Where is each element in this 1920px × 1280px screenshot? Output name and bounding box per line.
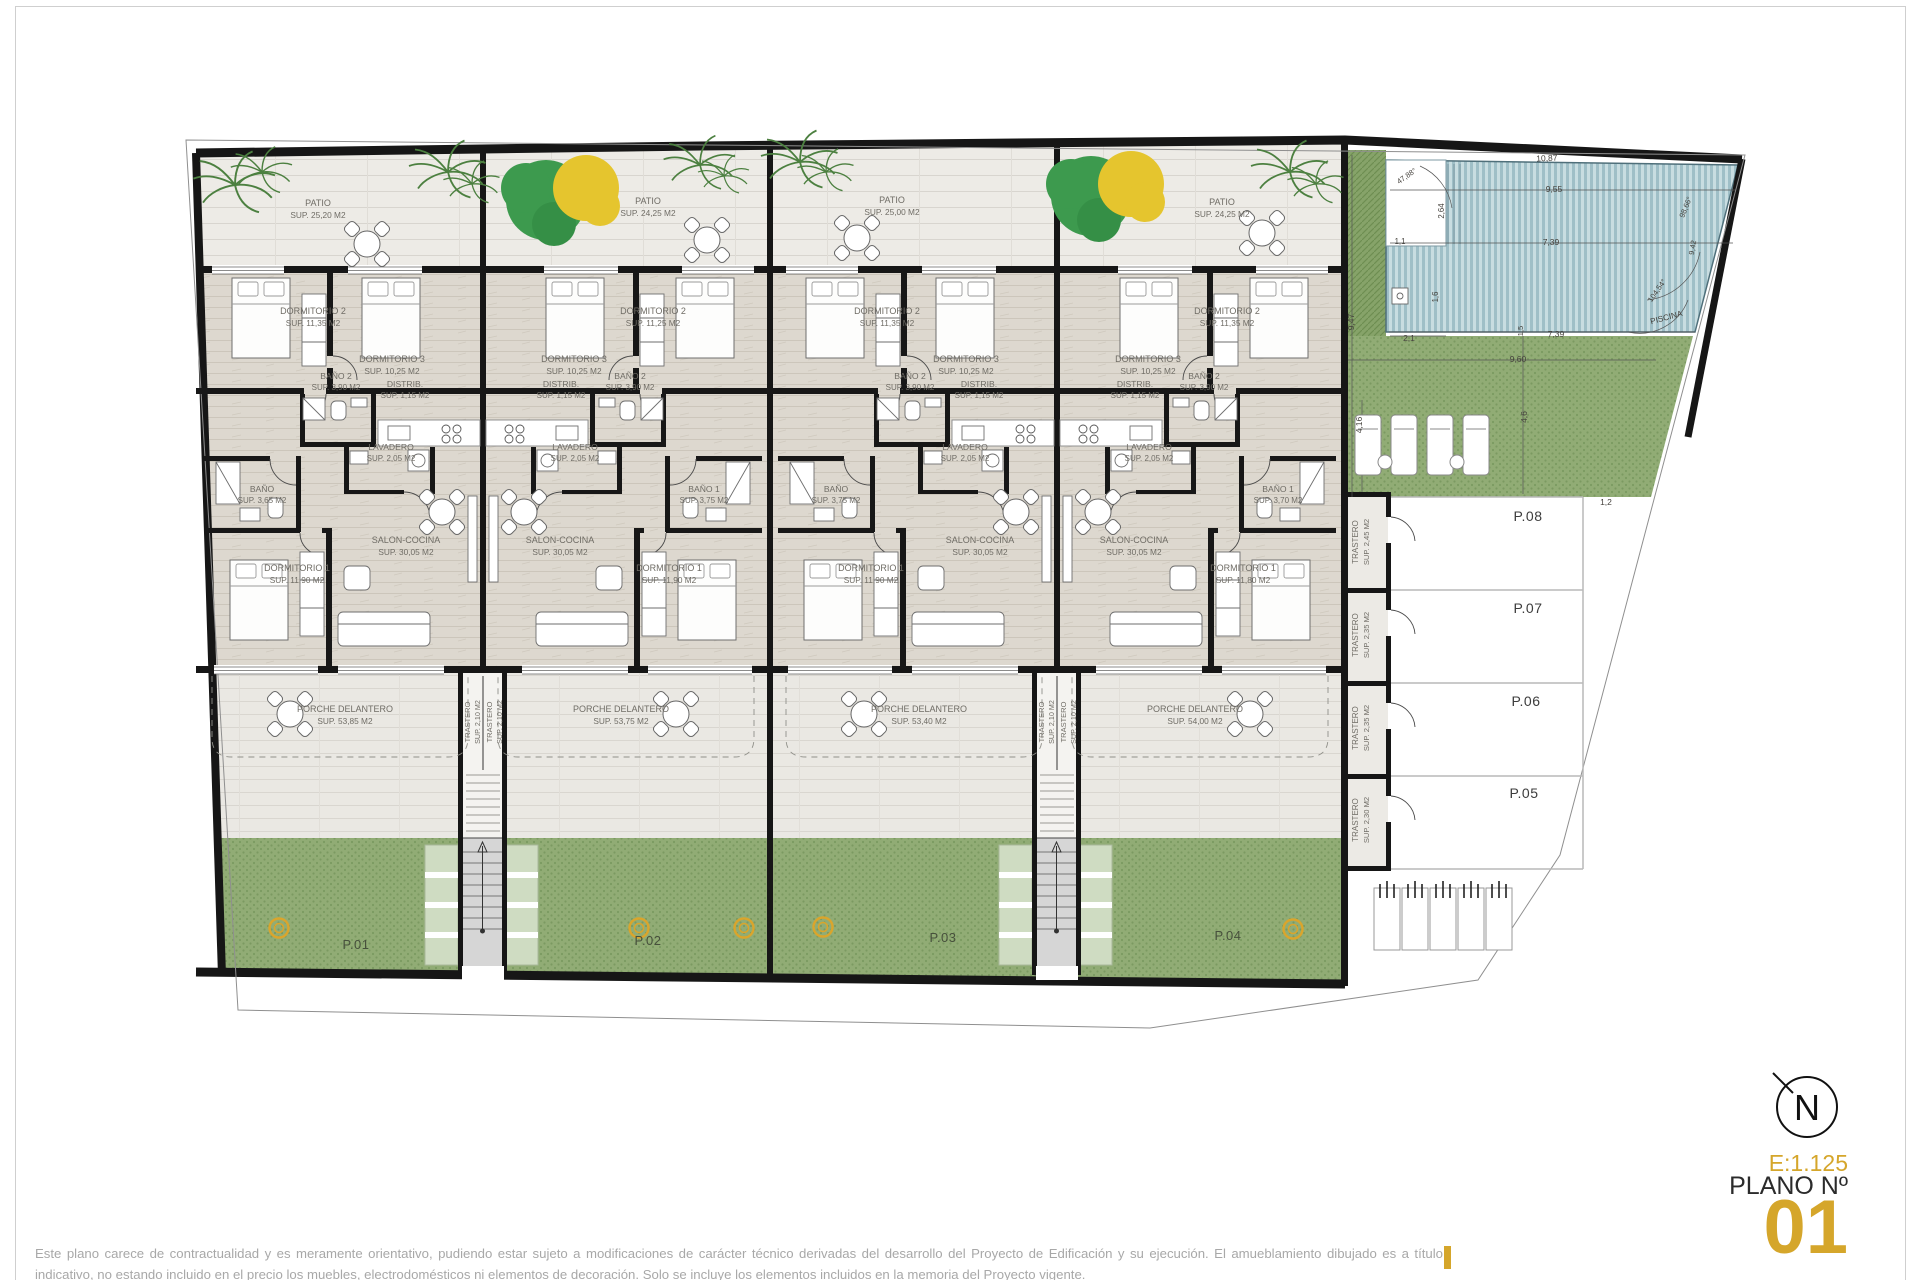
trastero-s1a-name: TRASTERO bbox=[463, 701, 472, 742]
u4-dorm1-area: SUP. 11,80 M2 bbox=[1216, 575, 1271, 585]
u1-dorm1-name: DORMITORIO 1 bbox=[264, 563, 330, 573]
u1-bano1-name: BAÑO bbox=[250, 484, 275, 494]
storage-doors bbox=[1391, 517, 1415, 820]
u2-salon-area: SUP. 30,05 M2 bbox=[532, 547, 588, 557]
u4-salon-name: SALON-COCINA bbox=[1100, 535, 1169, 545]
u2-dorm2-area: SUP. 11,25 M2 bbox=[626, 318, 681, 328]
parking-p06: P.06 bbox=[1512, 693, 1541, 709]
u3-dorm2-name: DORMITORIO 2 bbox=[854, 306, 920, 316]
dim-1-5: 1,5 bbox=[1516, 326, 1525, 336]
u4-dorm1-name: DORMITORIO 1 bbox=[1210, 563, 1276, 573]
u2-lavadero-name: LAVADERO bbox=[552, 442, 598, 452]
u3-distrib-area: SUP. 1,15 M2 bbox=[955, 391, 1004, 400]
u2-dorm1-name: DORMITORIO 1 bbox=[636, 563, 702, 573]
u3-dorm3-name: DORMITORIO 3 bbox=[933, 354, 999, 364]
u1-lavadero-name: LAVADERO bbox=[368, 442, 414, 452]
u3-lavadero-name: LAVADERO bbox=[942, 442, 988, 452]
u3-dorm2-area: SUP. 11,35 M2 bbox=[860, 318, 915, 328]
u1-bano1-area: SUP. 3,65 M2 bbox=[238, 496, 287, 505]
u2-porche-name: PORCHE DELANTERO bbox=[573, 704, 669, 714]
u3-porche-name: PORCHE DELANTERO bbox=[871, 704, 967, 714]
u1-dorm2-name: DORMITORIO 2 bbox=[280, 306, 346, 316]
u1-porche-name: PORCHE DELANTERO bbox=[297, 704, 393, 714]
u1-dorm2-area: SUP. 11,35 M2 bbox=[286, 318, 341, 328]
dim-1-2: 1,2 bbox=[1600, 497, 1612, 507]
u1-lavadero-area: SUP. 2,05 M2 bbox=[367, 454, 416, 463]
trastero-r3-name: TRASTERO bbox=[1351, 706, 1360, 750]
disclaimer: Este plano carece de contractualidad y e… bbox=[35, 1243, 1443, 1280]
u4-bano2-name: BAÑO 2 bbox=[1188, 371, 1220, 381]
patio-3-name: PATIO bbox=[879, 195, 905, 205]
dim-7-39-a: 7,39 bbox=[1543, 237, 1560, 247]
u2-bano1-name: BAÑO 1 bbox=[688, 484, 720, 494]
plot-p04: P.04 bbox=[1214, 928, 1241, 943]
patio-4-name: PATIO bbox=[1209, 197, 1235, 207]
u4-dorm2-name: DORMITORIO 2 bbox=[1194, 306, 1260, 316]
trastero-r1-area: SUP. 2,45 M2 bbox=[1362, 519, 1371, 565]
u3-lavadero-area: SUP. 2,05 M2 bbox=[941, 454, 990, 463]
u2-bano2-area: SUP. 3,90 M2 bbox=[606, 383, 655, 392]
u4-porche-name: PORCHE DELANTERO bbox=[1147, 704, 1243, 714]
u1-distrib-area: SUP. 1,15 M2 bbox=[381, 391, 430, 400]
patio-1-name: PATIO bbox=[305, 198, 331, 208]
dim-7-39-b: 7,39 bbox=[1548, 329, 1565, 339]
u1-bano2-name: BAÑO 2 bbox=[320, 371, 352, 381]
trastero-s2b-area: SUP. 2,10 M2 bbox=[1069, 700, 1078, 744]
trastero-s1b-name: TRASTERO bbox=[485, 701, 494, 742]
u4-lavadero-name: LAVADERO bbox=[1126, 442, 1172, 452]
plot-p01: P.01 bbox=[342, 937, 369, 952]
disclaimer-line-1: Este plano carece de contractualidad y e… bbox=[35, 1243, 1443, 1264]
north-compass: N bbox=[1773, 1073, 1837, 1137]
u3-bano1-area: SUP. 3,75 M2 bbox=[812, 496, 861, 505]
u4-dorm3-name: DORMITORIO 3 bbox=[1115, 354, 1181, 364]
u3-bano1-name: BAÑO bbox=[824, 484, 849, 494]
u4-porche-area: SUP. 54,00 M2 bbox=[1167, 716, 1223, 726]
dim-2-1: 2,1 bbox=[1403, 333, 1415, 343]
plot-p03: P.03 bbox=[929, 930, 956, 945]
u3-dorm3-area: SUP. 10,25 M2 bbox=[938, 366, 994, 376]
dim-10-87: 10,87 bbox=[1536, 152, 1558, 163]
u3-salon-name: SALON-COCINA bbox=[946, 535, 1015, 545]
parking-p05: P.05 bbox=[1510, 785, 1539, 801]
dim-1-6: 1,6 bbox=[1431, 292, 1440, 303]
parking-p07: P.07 bbox=[1514, 600, 1543, 616]
u1-salon-name: SALON-COCINA bbox=[372, 535, 441, 545]
dim-9-47: 9,47 bbox=[1346, 313, 1356, 330]
trastero-r4-name: TRASTERO bbox=[1351, 798, 1360, 842]
north-letter: N bbox=[1794, 1087, 1820, 1128]
u2-lavadero-area: SUP. 2,05 M2 bbox=[551, 454, 600, 463]
trastero-s2b-name: TRASTERO bbox=[1059, 701, 1068, 742]
dim-4-16: 4,16 bbox=[1354, 416, 1364, 433]
u2-distrib-area: SUP. 1,15 M2 bbox=[537, 391, 586, 400]
u3-porche-area: SUP. 53,40 M2 bbox=[891, 716, 947, 726]
u1-porche-area: SUP. 53,85 M2 bbox=[317, 716, 373, 726]
u1-bano2-area: SUP. 3,90 M2 bbox=[312, 383, 361, 392]
dim-4-6: 4,6 bbox=[1519, 411, 1529, 423]
parking-stalls bbox=[1391, 497, 1583, 869]
trastero-r4-area: SUP. 2,30 M2 bbox=[1362, 797, 1371, 843]
motorbike-stalls bbox=[1374, 881, 1512, 950]
u3-salon-area: SUP. 30,05 M2 bbox=[952, 547, 1008, 557]
u2-dorm2-name: DORMITORIO 2 bbox=[620, 306, 686, 316]
u1-salon-area: SUP. 30,05 M2 bbox=[378, 547, 434, 557]
u2-salon-name: SALON-COCINA bbox=[526, 535, 595, 545]
u4-salon-area: SUP. 30,05 M2 bbox=[1106, 547, 1162, 557]
trastero-s1a-area: SUP. 2,10 M2 bbox=[473, 700, 482, 744]
u3-distrib-name: DISTRIB. bbox=[961, 379, 997, 389]
u2-porche-area: SUP. 53,75 M2 bbox=[593, 716, 649, 726]
u4-dorm2-area: SUP. 11,35 M2 bbox=[1200, 318, 1255, 328]
floor-plan-canvas: N PATIOSUP. 25,20 M2PATIOSUP. 24,25 M2PA… bbox=[0, 0, 1920, 1280]
parking-p08: P.08 bbox=[1514, 508, 1543, 524]
u3-bano2-area: SUP. 3,90 M2 bbox=[886, 383, 935, 392]
dim-9-60: 9,60 bbox=[1510, 354, 1527, 364]
u2-bano2-name: BAÑO 2 bbox=[614, 371, 646, 381]
u2-bano1-area: SUP. 3,75 M2 bbox=[680, 496, 729, 505]
u4-bano1-name: BAÑO 1 bbox=[1262, 484, 1294, 494]
dim-9-55: 9,55 bbox=[1546, 184, 1563, 194]
patio-2-area: SUP. 24,25 M2 bbox=[620, 208, 676, 218]
u4-lavadero-area: SUP. 2,05 M2 bbox=[1125, 454, 1174, 463]
plot-p02: P.02 bbox=[634, 933, 661, 948]
patio-1-area: SUP. 25,20 M2 bbox=[290, 210, 346, 220]
u1-dorm1-area: SUP. 11,90 M2 bbox=[270, 575, 325, 585]
u2-distrib-name: DISTRIB. bbox=[543, 379, 579, 389]
u3-dorm1-name: DORMITORIO 1 bbox=[838, 563, 904, 573]
trastero-r2-area: SUP. 2,35 M2 bbox=[1362, 612, 1371, 658]
u4-dorm3-area: SUP. 10,25 M2 bbox=[1120, 366, 1176, 376]
u4-distrib-name: DISTRIB. bbox=[1117, 379, 1153, 389]
trastero-r2-name: TRASTERO bbox=[1351, 613, 1360, 657]
patio-3-area: SUP. 25,00 M2 bbox=[864, 207, 920, 217]
u1-dorm3-name: DORMITORIO 3 bbox=[359, 354, 425, 364]
dim-1-1: 1,1 bbox=[1395, 237, 1406, 246]
u2-dorm3-name: DORMITORIO 3 bbox=[541, 354, 607, 364]
trastero-s2a-name: TRASTERO bbox=[1037, 701, 1046, 742]
patio-4-area: SUP. 24,25 M2 bbox=[1194, 209, 1250, 219]
u2-dorm3-area: SUP. 10,25 M2 bbox=[546, 366, 602, 376]
u4-bano1-area: SUP. 3,70 M2 bbox=[1254, 496, 1303, 505]
u1-distrib-name: DISTRIB. bbox=[387, 379, 423, 389]
u4-distrib-area: SUP. 1,15 M2 bbox=[1111, 391, 1160, 400]
pool-shower bbox=[1392, 288, 1408, 304]
dim-2-64: 2,64 bbox=[1437, 203, 1446, 219]
trastero-s1b-area: SUP. 2,10 M2 bbox=[495, 700, 504, 744]
u4-bano2-area: SUP. 3,90 M2 bbox=[1180, 383, 1229, 392]
u2-dorm1-area: SUP. 11,90 M2 bbox=[642, 575, 697, 585]
plan-sheet: N PATIOSUP. 25,20 M2PATIOSUP. 24,25 M2PA… bbox=[0, 0, 1920, 1280]
trastero-s2a-area: SUP. 2,10 M2 bbox=[1047, 700, 1056, 744]
disclaimer-line-2: indicativo, no estando incluido en el pr… bbox=[35, 1264, 1443, 1280]
patio-2-name: PATIO bbox=[635, 196, 661, 206]
u3-dorm1-area: SUP. 11,90 M2 bbox=[844, 575, 899, 585]
u1-dorm3-area: SUP. 10,25 M2 bbox=[364, 366, 420, 376]
plan-number: 01 bbox=[1698, 1184, 1848, 1271]
brand-mark bbox=[1444, 1246, 1451, 1269]
trastero-r1-name: TRASTERO bbox=[1351, 520, 1360, 564]
u3-bano2-name: BAÑO 2 bbox=[894, 371, 926, 381]
trastero-r3-area: SUP. 2,35 M2 bbox=[1362, 705, 1371, 751]
